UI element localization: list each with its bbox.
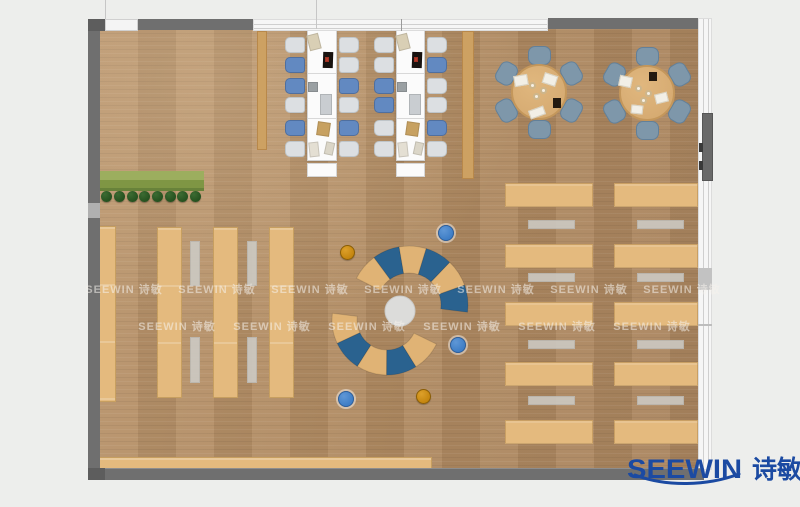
top-wall-segment-right [548, 18, 712, 29]
desk-end-table [396, 163, 425, 177]
watermark-text: SEEWIN 诗敏 [85, 281, 162, 297]
top-door-opening [105, 19, 138, 31]
long-table-vertical [157, 227, 182, 398]
bench-strip-vertical [190, 337, 200, 383]
plant [177, 191, 188, 202]
bottom-wall [88, 468, 704, 480]
round-table-chair [636, 121, 659, 140]
plant [139, 191, 150, 202]
floor-plan-contents: SEEWIN 诗敏SEEWIN 诗敏SEEWIN 诗敏SEEWIN 诗敏SEEW… [0, 0, 800, 507]
watermark-text: SEEWIN 诗敏 [613, 318, 690, 334]
watermark-text: SEEWIN 诗敏 [138, 318, 215, 334]
desk-item [397, 142, 409, 158]
desk-item [397, 82, 407, 92]
bench-strip-horizontal [637, 220, 684, 229]
watermark-text: SEEWIN 诗敏 [364, 281, 441, 297]
brand-logo: SEEWIN 诗敏 [627, 450, 800, 486]
top-wall-segment-left [138, 19, 253, 30]
table-item-dark [553, 98, 561, 108]
bench-strip-vertical [247, 241, 257, 286]
desk-item [320, 94, 332, 115]
office-chair-gray [374, 57, 394, 73]
office-chair-blue [427, 57, 447, 73]
desk-item [405, 121, 420, 137]
ottoman-blue [450, 337, 466, 353]
desk-item [409, 94, 421, 115]
top-left-corner-wall [88, 19, 105, 31]
office-chair-blue [339, 120, 359, 136]
desk-end-table [307, 163, 337, 177]
bench-strip-horizontal [637, 396, 684, 405]
reference-line-center [316, 0, 317, 29]
office-chair-gray [427, 141, 447, 157]
left-wall [88, 19, 100, 480]
right-door-handle [699, 143, 703, 152]
plant [101, 191, 112, 202]
wood-pillar-strip [257, 31, 267, 150]
table-item-dark [649, 72, 657, 81]
watermark-text: SEEWIN 诗敏 [643, 281, 720, 297]
office-chair-blue [285, 78, 305, 94]
long-table-horizontal [614, 420, 698, 444]
office-chair-gray [427, 97, 447, 113]
round-table-chair [528, 46, 551, 65]
office-chair-gray [339, 37, 359, 53]
floor-plan-canvas: SEEWIN 诗敏SEEWIN 诗敏SEEWIN 诗敏SEEWIN 诗敏SEEW… [0, 0, 800, 507]
watermark-text: SEEWIN 诗敏 [178, 281, 255, 297]
table-cup [640, 97, 647, 104]
office-chair-blue [374, 97, 394, 113]
table-cup [540, 87, 547, 94]
ottoman-orange [340, 245, 355, 260]
bottom-left-corner-wall [88, 468, 105, 480]
right-window-joint [698, 324, 712, 326]
right-window-band [698, 18, 712, 470]
long-table-horizontal [614, 362, 698, 386]
left-wall-opening [88, 203, 100, 218]
long-table-vertical [98, 226, 116, 402]
top-window-mullion [401, 19, 402, 31]
long-table-horizontal [614, 183, 698, 207]
long-table-horizontal [505, 362, 593, 386]
desk-item [308, 82, 318, 92]
office-chair-blue [339, 78, 359, 94]
bench-strip-horizontal [637, 340, 684, 349]
office-chair-gray [427, 37, 447, 53]
long-table-horizontal [614, 244, 698, 268]
office-chair-blue [285, 57, 305, 73]
right-door-hinge [699, 161, 703, 170]
brand-logo-chinese: 诗敏 [752, 450, 800, 486]
table-cup [533, 93, 540, 100]
office-chair-gray [374, 37, 394, 53]
office-chair-gray [339, 57, 359, 73]
watermark-text: SEEWIN 诗敏 [423, 318, 500, 334]
bench-strip-horizontal [528, 396, 575, 405]
long-table-horizontal [505, 183, 593, 207]
long-table-horizontal [505, 420, 593, 444]
watermark-text: SEEWIN 诗敏 [518, 318, 595, 334]
desk-item [316, 121, 331, 137]
desk-item [308, 142, 320, 158]
bench-strip-vertical [247, 337, 257, 383]
ottoman-orange [416, 389, 431, 404]
logo-swoosh-icon [631, 473, 743, 486]
plant [190, 191, 201, 202]
office-chair-gray [339, 141, 359, 157]
office-chair-gray [285, 141, 305, 157]
bench-strip-vertical [190, 241, 200, 286]
office-chair-gray [285, 97, 305, 113]
table-cup [529, 82, 536, 89]
reference-line-left [105, 0, 106, 19]
office-chair-blue [427, 120, 447, 136]
wood-pillar-strip [462, 31, 474, 179]
right-door [702, 113, 713, 181]
watermark-text: SEEWIN 诗敏 [550, 281, 627, 297]
office-chair-gray [339, 97, 359, 113]
plant [127, 191, 138, 202]
green-bench [100, 171, 204, 191]
table-cup [635, 85, 642, 92]
bench-strip-horizontal [528, 220, 575, 229]
table-item-paper [631, 104, 644, 114]
plant [114, 191, 125, 202]
watermark-text: SEEWIN 诗敏 [328, 318, 405, 334]
long-table-vertical [269, 227, 294, 398]
long-table-vertical [213, 227, 238, 398]
office-chair-gray [285, 37, 305, 53]
desk-item [414, 57, 418, 62]
long-table-horizontal [505, 244, 593, 268]
ottoman-blue [338, 391, 354, 407]
plant [152, 191, 163, 202]
watermark-text: SEEWIN 诗敏 [233, 318, 310, 334]
ottoman-blue [438, 225, 454, 241]
desk-item [325, 57, 329, 62]
watermark-text: SEEWIN 诗敏 [271, 281, 348, 297]
bench-strip-horizontal [528, 340, 575, 349]
watermark-text: SEEWIN 诗敏 [457, 281, 534, 297]
table-cup [645, 90, 652, 97]
office-chair-gray [427, 78, 447, 94]
office-chair-blue [285, 120, 305, 136]
office-chair-blue [374, 78, 394, 94]
round-table-chair [528, 120, 551, 139]
table-item-paper [618, 75, 633, 88]
office-chair-gray [374, 120, 394, 136]
office-chair-gray [374, 141, 394, 157]
plant [165, 191, 176, 202]
round-table-chair [636, 47, 659, 66]
